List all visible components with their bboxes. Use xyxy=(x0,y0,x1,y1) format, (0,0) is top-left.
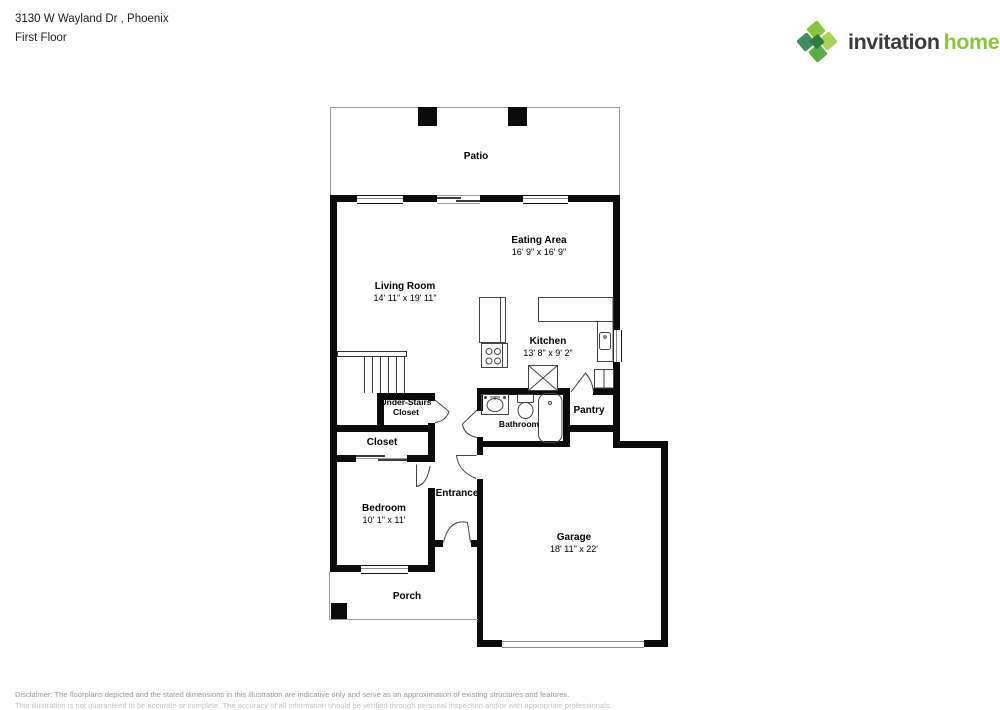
room-label-living-room: Living Room 14' 11" x 19' 11" xyxy=(373,281,436,303)
room-name: Entrance xyxy=(436,488,479,500)
room-label-porch: Porch xyxy=(393,591,421,603)
pantry-door xyxy=(571,373,594,392)
wall xyxy=(593,388,620,395)
wall xyxy=(330,455,356,462)
floorplan: Patio Eating Area 16' 9" x 16' 9" Living… xyxy=(0,0,1000,707)
disclaimer-line-2: This illustration is not guaranteed to b… xyxy=(15,701,612,710)
disclaimer-line-1: Disclaimer: The floorplans depicted and … xyxy=(15,690,570,699)
wall xyxy=(644,640,668,647)
room-label-garage: Garage 18' 11" x 22' xyxy=(550,532,598,554)
wall xyxy=(428,423,435,462)
under-stairs-closet-door xyxy=(435,400,449,423)
wall xyxy=(613,362,620,432)
room-dimensions: 16' 9" x 16' 9" xyxy=(511,247,566,258)
room-name: Garage xyxy=(550,532,598,544)
sliding-glass-door xyxy=(437,195,480,204)
room-name: Eating Area xyxy=(511,235,566,247)
wall xyxy=(477,640,502,647)
wall xyxy=(563,425,620,432)
patio-wall xyxy=(330,107,331,196)
bedroom-door xyxy=(417,465,431,487)
garage-door xyxy=(502,641,644,648)
room-label-under-stairs-closet: Under-Stairs Closet xyxy=(375,397,437,417)
wall xyxy=(613,441,668,448)
wall xyxy=(661,441,668,647)
room-name: Under-Stairs Closet xyxy=(375,397,437,417)
refrigerator-icon xyxy=(480,298,506,343)
room-label-bathroom: Bathroom xyxy=(499,419,539,429)
stairs xyxy=(396,356,397,393)
room-name: Pantry xyxy=(573,405,604,417)
window xyxy=(523,195,568,204)
room-label-pantry: Pantry xyxy=(573,405,604,417)
room-label-patio: Patio xyxy=(464,151,488,163)
room-label-bedroom: Bedroom 10' 1" x 11' xyxy=(362,503,406,525)
room-dimensions: 18' 11" x 22' xyxy=(550,544,598,555)
wall xyxy=(403,195,437,202)
room-label-eating-area: Eating Area 16' 9" x 16' 9" xyxy=(511,235,566,257)
wall xyxy=(428,488,435,572)
garage-entry-door xyxy=(457,456,477,479)
wall xyxy=(477,395,483,411)
patio-post xyxy=(508,107,527,126)
stairs xyxy=(388,356,389,393)
sliding-closet-door xyxy=(356,455,385,457)
utility-closet xyxy=(595,370,614,389)
room-name: Patio xyxy=(464,151,488,163)
room-label-kitchen: Kitchen 13' 8" x 9' 2" xyxy=(523,336,572,358)
porch-wall xyxy=(329,572,330,620)
window xyxy=(357,195,403,204)
wall xyxy=(330,565,361,572)
room-name: Living Room xyxy=(373,281,436,293)
stairs xyxy=(380,356,381,393)
porch-wall xyxy=(329,619,478,620)
room-name: Kitchen xyxy=(523,336,572,348)
patio-post xyxy=(418,107,437,126)
wall xyxy=(563,395,570,447)
porch-post xyxy=(331,603,347,619)
stairs xyxy=(364,356,365,393)
wall xyxy=(477,441,570,447)
wall xyxy=(477,388,570,395)
wall xyxy=(433,540,443,547)
wall xyxy=(477,479,483,647)
wall xyxy=(613,195,620,330)
room-dimensions: 13' 8" x 9' 2" xyxy=(523,348,572,359)
bathroom-sink-icon xyxy=(482,395,509,415)
stairs xyxy=(404,356,405,393)
room-name: Closet xyxy=(367,437,398,449)
wall xyxy=(480,195,523,202)
kitchen-island-icon xyxy=(529,366,558,391)
room-name: Porch xyxy=(393,591,421,603)
room-name: Bathroom xyxy=(499,419,539,429)
room-name: Bedroom xyxy=(362,503,406,515)
room-label-closet: Closet xyxy=(367,437,398,449)
patio-wall xyxy=(619,107,620,196)
wall xyxy=(330,195,337,572)
patio-wall xyxy=(330,107,620,108)
kitchen-sink-icon xyxy=(600,333,611,350)
room-label-entrance: Entrance xyxy=(436,488,479,500)
room-dimensions: 14' 11" x 19' 11" xyxy=(373,293,436,304)
front-door xyxy=(444,522,471,543)
window xyxy=(613,330,622,362)
bathtub-icon xyxy=(539,394,563,443)
sliding-closet-door xyxy=(378,459,407,461)
toilet-icon xyxy=(518,395,534,419)
stairs xyxy=(372,356,373,393)
window xyxy=(361,565,408,574)
wall xyxy=(477,447,483,455)
stove-icon xyxy=(482,344,508,368)
bathroom-door xyxy=(463,410,478,438)
room-dimensions: 10' 1" x 11' xyxy=(362,515,406,526)
